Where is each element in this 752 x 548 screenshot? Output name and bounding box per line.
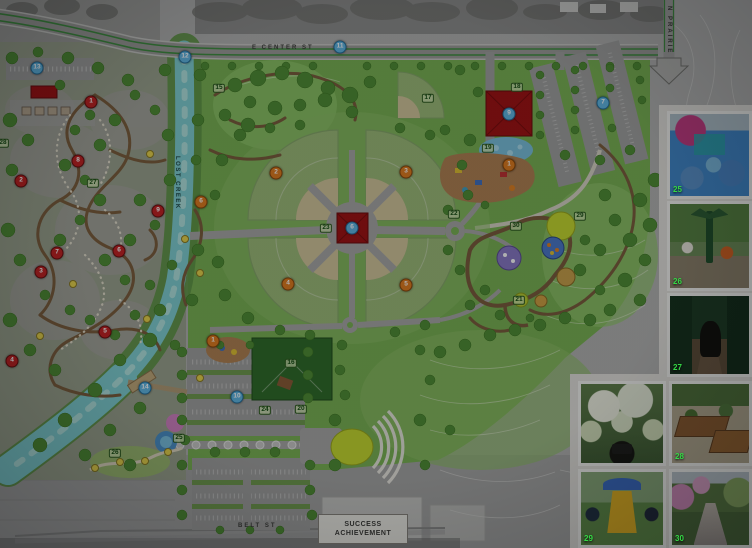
photos-layer: 252627282930 [0,0,752,548]
photo-number-27: 27 [673,364,682,372]
photo-number-28: 28 [675,453,684,461]
photo-raised-garden-beds: 28 [669,381,752,466]
photo-accessible-swings: 26 [667,201,752,291]
photo-number-29: 29 [584,535,593,543]
photo-number-26: 26 [673,278,682,286]
photo-number-30: 30 [675,535,684,543]
photo-disc-golf: 27 [667,293,752,377]
photo-splash-pad: 25 [667,111,752,199]
photo-blossom-walkway: 30 [669,469,752,548]
park-master-plan-map: E CENTER STLOST CREEKN PRAIRIEBELT ST 15… [0,0,752,548]
photo-number-25: 25 [673,186,682,194]
photo-flower-arbor-bench [578,381,666,466]
photo-adaptive-swing: 29 [578,469,666,548]
